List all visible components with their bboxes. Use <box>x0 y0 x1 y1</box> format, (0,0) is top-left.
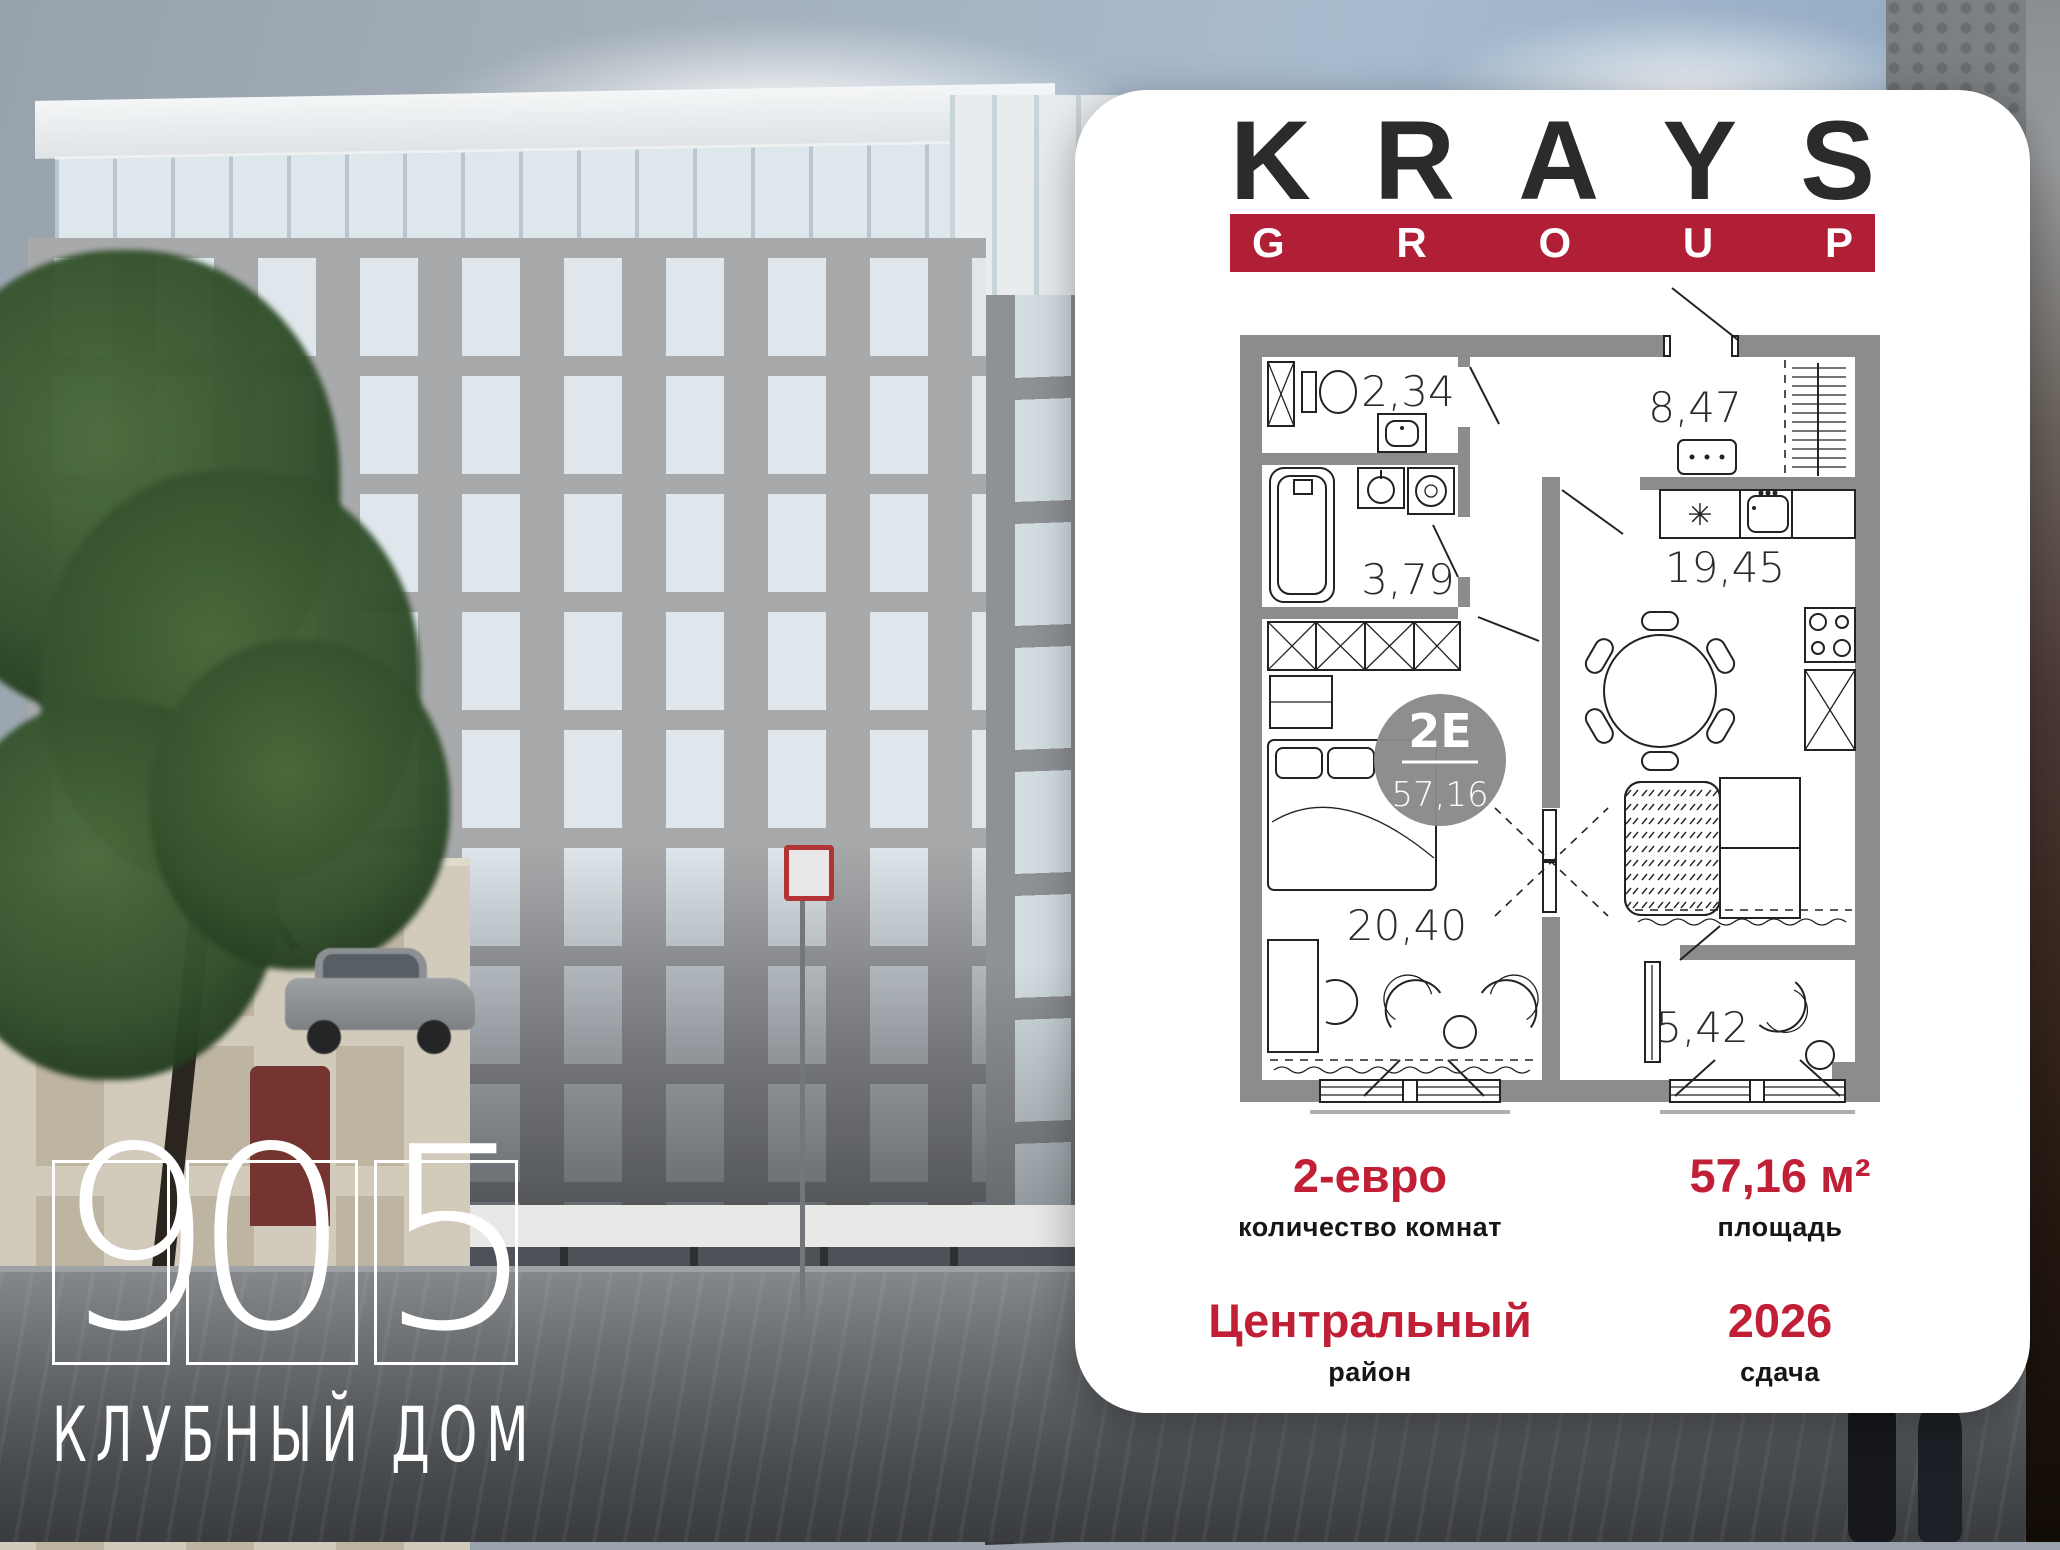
tree <box>150 640 450 970</box>
wardrobe-cabinets <box>1268 622 1460 670</box>
bedroom-door <box>1478 617 1539 641</box>
room-area-label-kitchen: 19,45 <box>1665 543 1785 592</box>
listing-card: KRAYS GROUP <box>1075 90 2030 1413</box>
room-area-label-hall: 8,47 <box>1648 383 1742 432</box>
brand-logo-krays: KRAYS <box>1230 114 1875 208</box>
room-area-label-toilet: 2,34 <box>1361 367 1455 416</box>
digit-frame: 0 <box>186 1160 358 1365</box>
car-wheel <box>417 1020 451 1054</box>
armchair <box>1482 962 1553 1027</box>
detail-completion-value: 2026 <box>1575 1293 1985 1349</box>
detail-district-label: район <box>1165 1357 1575 1388</box>
detail-rooms-label: количество комнат <box>1165 1212 1575 1243</box>
dining-table <box>1604 635 1716 747</box>
plan-walls <box>1240 335 1880 1102</box>
pillow <box>1276 748 1322 778</box>
entrance-door <box>1672 288 1738 340</box>
detail-area-value: 57,16 м² <box>1575 1148 1985 1204</box>
pillow <box>1328 748 1374 778</box>
residence-logo: 9 0 5 КЛУБНЫЙ ДОМ <box>52 1160 530 1448</box>
apartment-type-badge: 2Е 57,16 <box>1374 694 1506 826</box>
road-sign-pole <box>800 852 805 1322</box>
foreground-building-edge <box>2026 0 2060 1542</box>
car <box>285 948 475 1056</box>
room-area-label-bathroom: 3,79 <box>1361 555 1455 604</box>
sliding-opening <box>1495 808 1608 916</box>
side-table <box>1444 1016 1476 1048</box>
digit-frame: 9 <box>52 1160 170 1365</box>
residence-number: 9 0 5 <box>52 1160 530 1365</box>
fridge-icon: ✳ <box>1687 498 1712 533</box>
balcony-table <box>1806 1041 1834 1069</box>
desk-chair <box>1326 980 1357 1024</box>
kitchen-door <box>1562 490 1623 534</box>
armchair <box>1370 962 1441 1027</box>
detail-area: 57,16 м² площадь <box>1575 1148 1985 1243</box>
apartment-type: 2Е <box>1408 704 1471 758</box>
detail-completion: 2026 сдача <box>1575 1293 1985 1388</box>
room-area-label-bedroom: 20,40 <box>1347 901 1467 950</box>
detail-rooms-value: 2-евро <box>1165 1148 1575 1204</box>
car-wheel <box>307 1020 341 1054</box>
detail-rooms: 2-евро количество комнат <box>1165 1148 1575 1243</box>
road-sign <box>784 845 834 901</box>
detail-completion-label: сдача <box>1575 1357 1985 1388</box>
detail-area-label: площадь <box>1575 1212 1985 1243</box>
toilet-bowl <box>1320 371 1356 413</box>
toilet-door <box>1470 367 1499 424</box>
pedestrian <box>1918 1395 1962 1542</box>
floor-plan: ✳ <box>1240 275 1880 1145</box>
digit-0: 0 <box>189 1115 355 1367</box>
listing-details: 2-евро количество комнат 57,16 м² площад… <box>1165 1148 1985 1388</box>
brand-logo-group-banner: GROUP <box>1230 214 1875 272</box>
room-area-label-balcony: 5,42 <box>1655 1003 1749 1052</box>
detail-district: Центральный район <box>1165 1293 1575 1388</box>
residence-tagline: КЛУБНЫЙ ДОМ <box>52 1391 530 1479</box>
toilet-cistern <box>1302 372 1316 412</box>
digit-frame: 5 <box>374 1160 518 1365</box>
balcony-armchair <box>1759 982 1820 1046</box>
detail-district-value: Центральный <box>1165 1293 1575 1349</box>
digit-9: 9 <box>55 1115 167 1367</box>
digit-5: 5 <box>377 1115 515 1367</box>
desk <box>1268 940 1318 1052</box>
washing-machine <box>1408 468 1454 514</box>
apartment-area: 57,16 <box>1391 775 1488 815</box>
